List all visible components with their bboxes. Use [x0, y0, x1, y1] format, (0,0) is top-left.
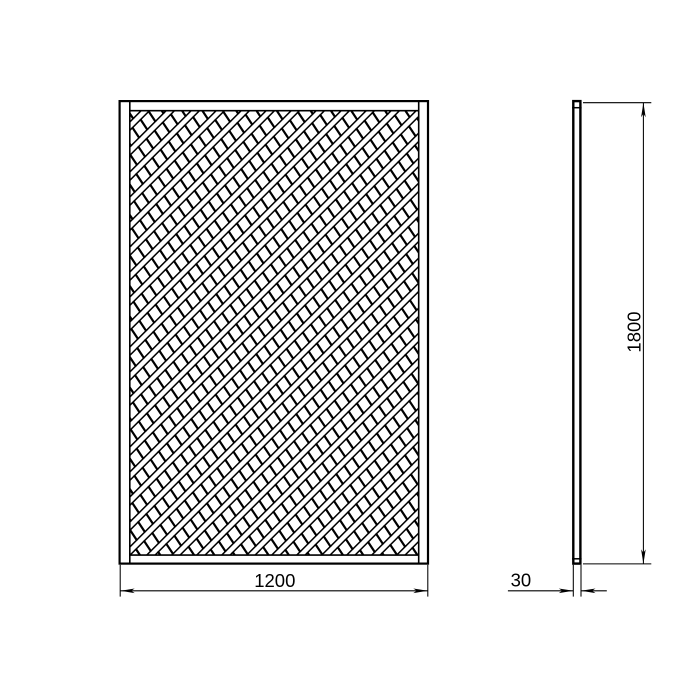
svg-text:30: 30 — [511, 570, 532, 591]
svg-text:1800: 1800 — [624, 311, 645, 352]
svg-text:1200: 1200 — [254, 570, 295, 591]
